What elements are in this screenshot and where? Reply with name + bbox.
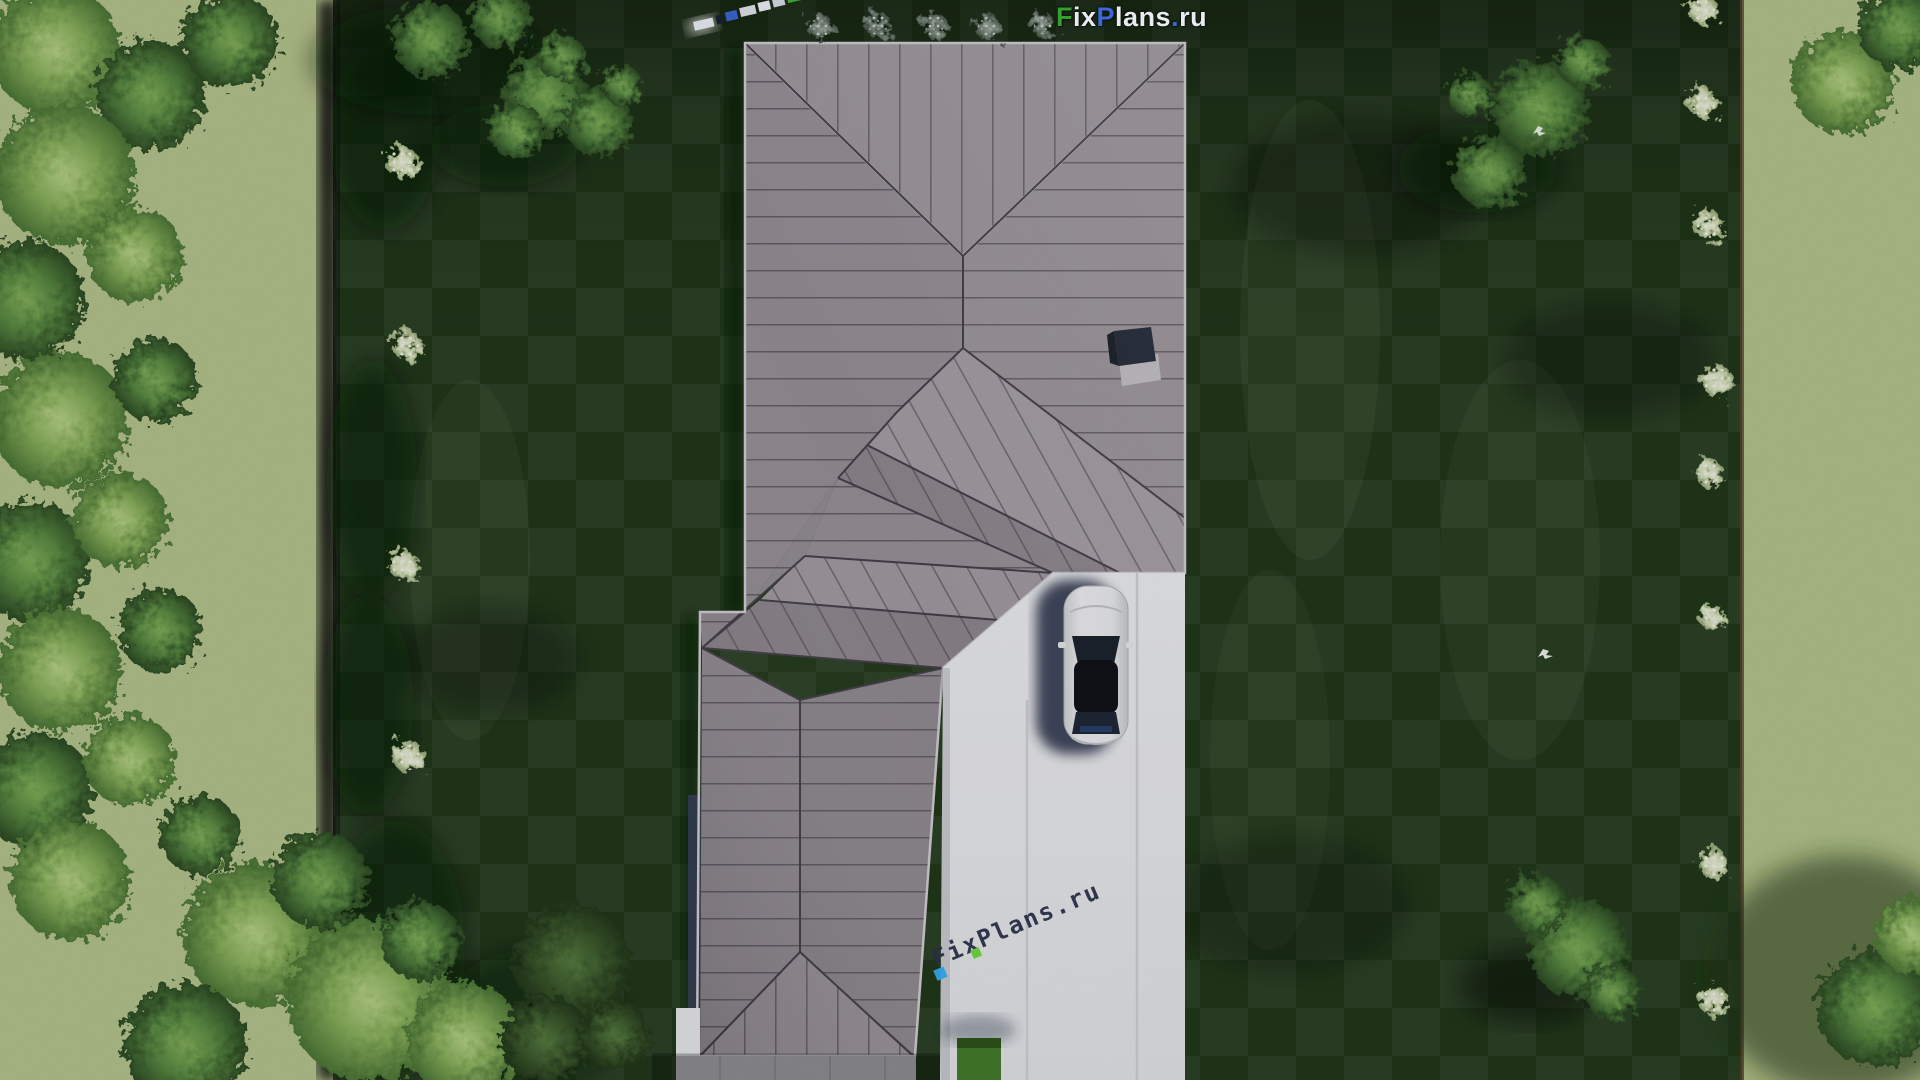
watermark-segment: ru (1179, 2, 1207, 32)
watermark-segment: . (1171, 2, 1179, 32)
watermark-segment: ix (1073, 2, 1097, 32)
watermark-segment: P (1097, 2, 1116, 32)
watermark-fixplans: FixPlans.ru (1056, 2, 1207, 33)
scene-canvas (0, 0, 1920, 1080)
watermark-segment: F (1056, 2, 1073, 32)
watermark-segment: lans (1115, 2, 1171, 32)
site-plan-render: FixPlans.ru FixPlans.ru (0, 0, 1920, 1080)
